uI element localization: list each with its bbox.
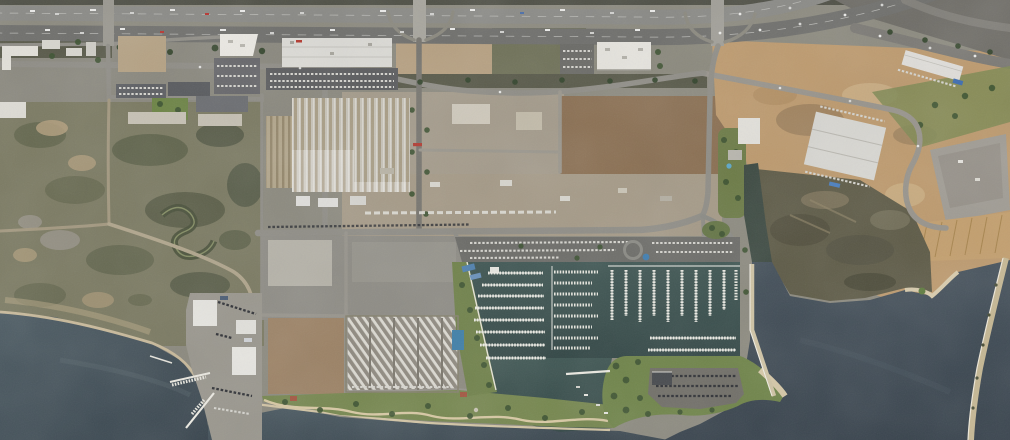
satellite-image: Aerial satellite view — bayfront industr…: [0, 0, 1010, 440]
photo-texture: [0, 0, 1010, 440]
satellite-map[interactable]: Aerial satellite view — bayfront industr…: [0, 0, 1010, 440]
